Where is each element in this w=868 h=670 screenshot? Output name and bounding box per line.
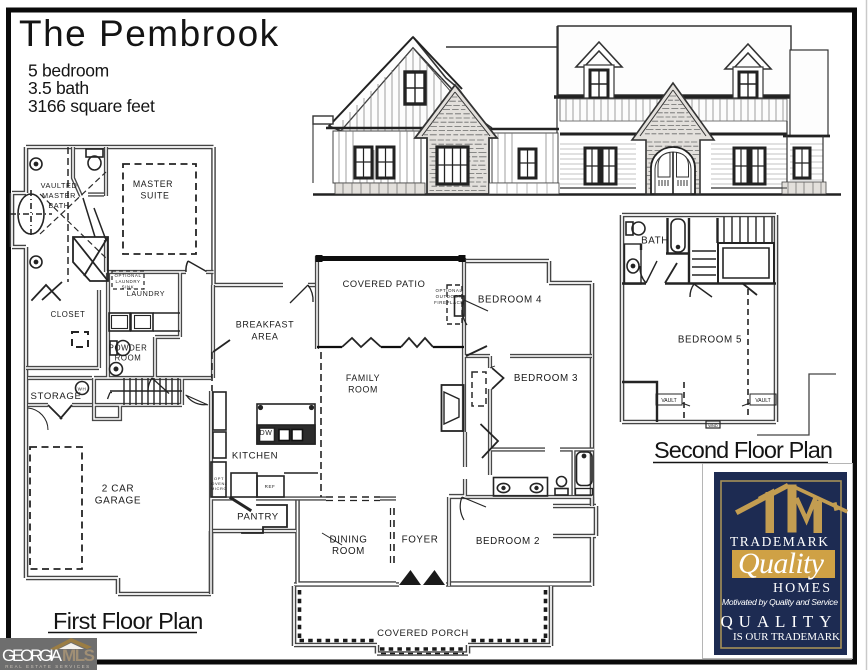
svg-text:GARAGE: GARAGE [95, 496, 141, 507]
svg-text:FOYER: FOYER [402, 535, 439, 546]
svg-text:LAUNDRY: LAUNDRY [127, 289, 165, 298]
svg-text:ROOM: ROOM [332, 546, 365, 557]
svg-text:MICRO: MICRO [211, 486, 227, 491]
svg-text:OPTIONAL: OPTIONAL [435, 288, 462, 293]
svg-text:2 CAR: 2 CAR [102, 484, 134, 495]
svg-text:AREA: AREA [252, 332, 279, 342]
svg-text:FAMILY: FAMILY [346, 373, 380, 383]
svg-text:FIREPLACE: FIREPLACE [434, 300, 464, 305]
svg-text:3.5 bath: 3.5 bath [28, 78, 89, 98]
svg-text:POWDER: POWDER [109, 344, 148, 353]
svg-text:VAULTED: VAULTED [41, 181, 78, 190]
svg-text:MLS: MLS [62, 646, 95, 665]
svg-text:BATH: BATH [48, 201, 69, 210]
svg-text:First Floor Plan: First Floor Plan [53, 608, 203, 634]
svg-text:BEDROOM 4: BEDROOM 4 [478, 295, 542, 306]
svg-text:BATH: BATH [641, 236, 669, 247]
svg-text:IS OUR TRADEMARK: IS OUR TRADEMARK [733, 631, 841, 643]
svg-text:KITCHEN: KITCHEN [232, 451, 278, 462]
svg-text:CLOSET: CLOSET [51, 310, 86, 319]
svg-text:WND: WND [708, 423, 718, 428]
svg-text:ROOM: ROOM [115, 354, 142, 363]
svg-text:STORAGE: STORAGE [31, 391, 82, 402]
svg-text:PANTRY: PANTRY [237, 512, 279, 523]
svg-text:SINK: SINK [122, 285, 135, 290]
svg-text:3166 square feet: 3166 square feet [28, 96, 155, 116]
svg-text:REF: REF [265, 484, 276, 489]
svg-text:BEDROOM 3: BEDROOM 3 [514, 373, 578, 384]
svg-text:OPTIONAL: OPTIONAL [114, 273, 141, 278]
svg-text:BREAKFAST: BREAKFAST [236, 320, 294, 330]
svg-text:QUALITY: QUALITY [721, 612, 838, 631]
svg-text:WH: WH [78, 387, 87, 392]
svg-text:HOMES: HOMES [773, 581, 833, 596]
svg-text:OUTDOOR: OUTDOOR [436, 294, 463, 299]
svg-text:SUITE: SUITE [141, 191, 170, 201]
svg-text:MASTER: MASTER [133, 179, 173, 189]
svg-text:MASTER: MASTER [42, 191, 76, 200]
svg-text:DINING: DINING [330, 535, 368, 546]
svg-text:ROOM: ROOM [348, 385, 378, 395]
svg-text:REAL ESTATE SERVICES: REAL ESTATE SERVICES [5, 664, 91, 669]
svg-text:DW: DW [260, 430, 273, 437]
svg-text:GEORGIA: GEORGIA [2, 646, 63, 665]
svg-text:BEDROOM 5: BEDROOM 5 [678, 335, 742, 346]
svg-text:The Pembrook: The Pembrook [19, 13, 280, 54]
svg-text:Second Floor Plan: Second Floor Plan [654, 437, 832, 463]
svg-text:Quality: Quality [738, 547, 825, 580]
svg-text:LAUNDRY: LAUNDRY [115, 279, 140, 284]
svg-text:VAULT: VAULT [661, 398, 676, 404]
svg-text:COVERED PATIO: COVERED PATIO [343, 279, 426, 289]
svg-text:VAULT: VAULT [755, 398, 770, 404]
svg-text:Motivated by Quality and Servi: Motivated by Quality and Service [722, 597, 838, 607]
svg-text:BEDROOM 2: BEDROOM 2 [476, 536, 540, 547]
svg-text:COVERED PORCH: COVERED PORCH [377, 628, 469, 639]
